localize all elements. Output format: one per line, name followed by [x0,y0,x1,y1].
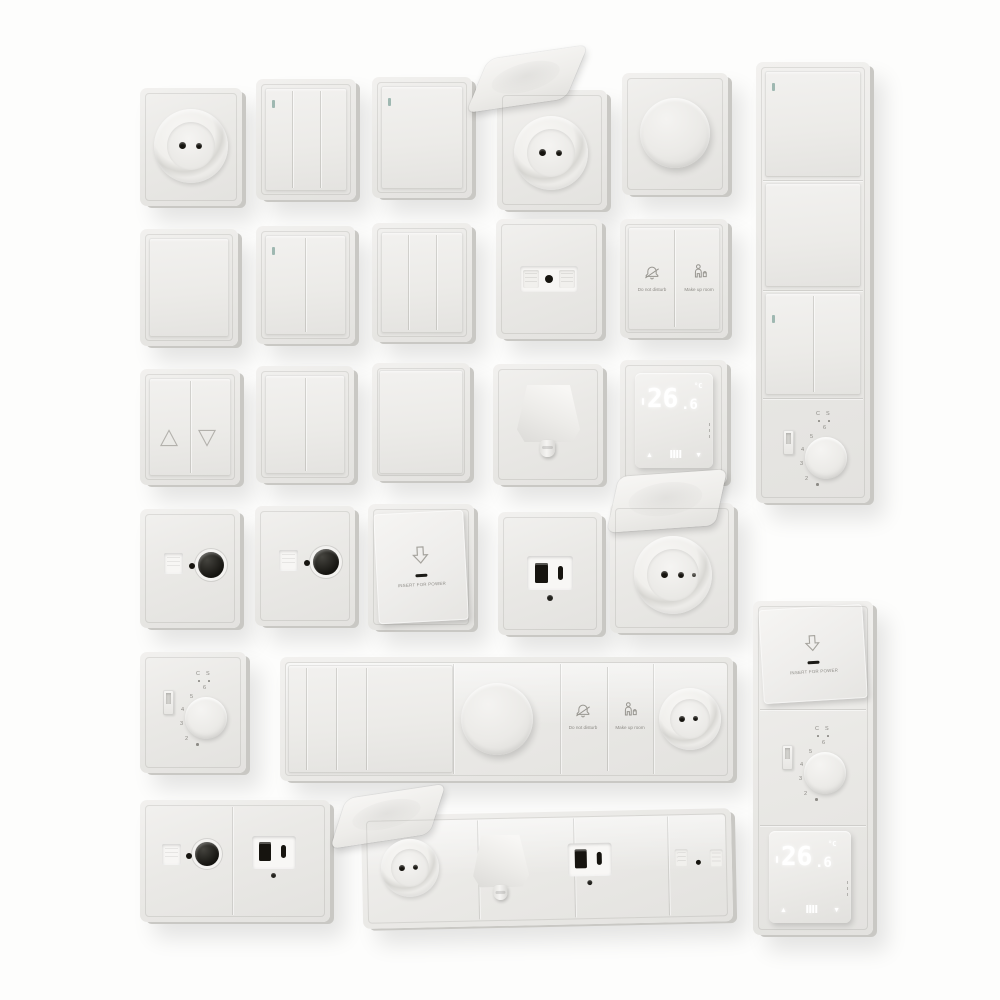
rocker-divider [366,668,367,770]
coax-connector[interactable] [198,552,224,578]
data-socket-plate [496,219,602,339]
temp-up-button[interactable]: ▲ [646,452,653,459]
rocker-divider [336,668,337,770]
data-port[interactable] [710,849,723,866]
section-divider [763,398,863,399]
single-rocker-switch-plate [372,363,470,481]
scale-number: 3 [180,721,183,727]
horizontal-socket-panel [361,808,733,929]
socket-pin-hole [413,865,418,870]
tv-pin-hole [186,853,192,859]
rocker-triple[interactable] [265,88,347,191]
socket-pin-hole [661,571,668,578]
standby-mark: S [206,671,210,677]
section-divider [653,664,654,774]
makeup-label: Make up room [682,287,716,293]
temperature-unit: °C [694,382,702,390]
section-divider [763,180,863,181]
scale-number: 4 [181,707,184,713]
rocker-double[interactable] [265,375,345,474]
digital-thermostat: 26 .6 °C ▲ ▼ [635,373,713,468]
usb-c-port[interactable] [558,566,563,580]
scale-number: 5 [809,749,812,755]
temperature-value: 26 [781,844,812,870]
blind-down-icon [194,425,220,451]
rocker-divider [408,235,409,330]
socket-contact [692,573,696,577]
scale-dot [198,680,200,682]
digital-thermostat: 26 .6 °C ▲ ▼ [769,831,851,923]
insert-label: INSERT FOR POWER [762,666,866,677]
center-hole [696,860,701,865]
temperature-decimal: .6 [815,856,832,870]
heating-indicator-icon [776,856,778,863]
standby-mark: S [826,411,830,417]
dimmer-knob[interactable] [640,98,710,168]
keycard-holder-plate: INSERT FOR POWER [368,504,474,630]
rocker-triple[interactable] [381,232,463,333]
dnd-label: Do not disturb [635,287,669,293]
bell-slash-icon [642,263,662,283]
eu-socket[interactable] [634,536,712,614]
card-slot[interactable] [807,661,819,665]
socket-pin-hole [693,716,698,721]
scale-number: 6 [203,685,206,691]
cable-outlet-hood [517,385,580,442]
rocker-double[interactable] [765,293,861,395]
dnd-label: Do not disturb [566,725,600,731]
section-divider [760,709,866,710]
center-hole [545,275,553,283]
blind-switch-plate [140,369,240,485]
setpoint-dot [196,743,199,746]
status-indicator [772,83,775,91]
temp-down-button[interactable]: ▼ [695,452,702,459]
scale-number: 5 [810,434,813,440]
analog-thermostat: C S 6 5 4 3 2 [759,715,865,823]
dimmer-knob[interactable] [461,683,533,755]
keycard-front[interactable]: INSERT FOR POWER [373,510,469,625]
mode-slider[interactable] [782,745,793,770]
scale-number: 3 [799,776,802,782]
horizontal-multigang-panel: Do not disturb Make up room [280,657,733,781]
section-divider [453,664,454,774]
makeup-label: Make up room [613,725,647,731]
usb-a-port[interactable] [535,563,548,583]
rocker-double[interactable] [265,235,346,335]
standby-mark: S [825,726,829,732]
data-port[interactable] [675,849,688,866]
menu-grid-icon[interactable] [673,450,675,458]
analog-thermostat: C S 6 5 4 3 2 [140,660,246,768]
rocker-divider [190,381,191,473]
data-socket[interactable] [520,266,578,292]
socket-pin-hole [196,143,202,149]
single-rocker-switch-plate [372,77,472,198]
rocker-divider [306,668,307,770]
thermostat-dial[interactable] [804,752,846,794]
scale-number: 6 [823,425,826,431]
temperature-value: 26 [647,386,678,412]
menu-grid-icon[interactable] [809,905,811,913]
rocker-divider [607,667,608,771]
usb-a-port[interactable] [575,849,587,868]
tv-pin-hole [304,560,310,566]
side-buttons[interactable] [847,881,849,884]
dimmer-plate [622,73,728,195]
scale-dot [818,420,820,422]
mounting-hole [271,873,276,878]
socket-lid[interactable] [607,469,727,532]
socket-lid[interactable] [330,784,445,849]
coax-connector[interactable] [195,842,219,866]
status-indicator [272,247,275,255]
scale-dot [817,735,819,737]
scale-number: 4 [801,447,804,453]
scale-number: 5 [190,694,193,700]
single-rocker-switch-plate [140,229,238,346]
setpoint-dot [816,483,819,486]
eu-socket[interactable] [380,838,439,897]
rocker-single[interactable] [149,238,229,337]
tv-slot[interactable] [279,550,298,571]
rocker-divider [292,91,293,188]
mounting-hole [547,595,553,601]
bell-slash-icon [573,701,593,721]
socket-pin-hole [678,572,684,578]
tall-hotel-panel: INSERT FOR POWER C S 6 5 4 3 2 26 .6 °C … [753,601,873,935]
status-indicator [388,98,391,106]
keycard-front[interactable]: INSERT FOR POWER [758,604,868,704]
usb-socket-plate [498,512,602,635]
heating-indicator-icon [642,398,644,405]
scale-number: 4 [800,762,803,768]
triple-rocker-switch-plate [372,223,472,342]
insert-card-arrow-icon [408,543,433,568]
double-rocker-switch-plate [256,366,354,483]
socket-pin-hole [556,150,562,156]
rocker-single[interactable] [765,183,861,287]
mode-slider[interactable] [163,690,174,715]
scale-number: 6 [822,740,825,746]
usb-recess [567,843,612,877]
socket-pin-hole [399,865,405,871]
scale-dot [827,735,829,737]
comfort-mark: C [815,726,819,732]
cable-gland [540,440,555,457]
dnd-switch-plate: Do not disturb Make up room [620,219,728,338]
section-divider [560,664,561,774]
socket-pin-hole [679,716,685,722]
housekeeping-icon [620,700,640,720]
switch-collection-render: C S 6 5 4 3 2 [0,0,1000,1000]
scale-dot [828,420,830,422]
eu-socket[interactable] [514,116,588,190]
rocker-single[interactable] [381,86,463,189]
tv-socket-plate [255,506,355,626]
thermostat-dial[interactable] [185,697,227,739]
tv-slot[interactable] [164,553,183,574]
mounting-hole [587,880,592,885]
eu-socket[interactable] [659,688,721,750]
tv-socket-plate [140,509,240,628]
usb-a-port[interactable] [259,842,271,861]
cable-gland [493,885,507,900]
scale-number: 2 [805,476,808,482]
blind-up-icon [156,425,182,451]
temp-up-button[interactable]: ▲ [780,907,787,914]
usb-recess [252,836,296,869]
tall-multigang-panel: C S 6 5 4 3 2 [756,62,870,503]
cable-outlet-plate [493,364,603,485]
rocker-divider [305,238,306,332]
rocker-divider [813,296,814,392]
rocker-divider [320,91,321,188]
temperature-unit: °C [828,840,836,848]
double-rocker-switch-plate [256,226,355,344]
digital-thermostat-plate: 26 .6 °C ▲ ▼ [620,360,727,484]
rocker-divider [305,378,306,471]
tv-pin-hole [189,563,195,569]
tv-usb-combo-plate [140,800,330,922]
status-indicator [772,315,775,323]
socket-pin-hole [179,142,186,149]
eu-socket-plate [140,88,242,206]
section-divider [232,807,233,915]
eu-socket[interactable] [154,109,228,183]
lidded-socket-plate [497,90,607,210]
section-divider [667,816,670,915]
analog-thermostat-plate: C S 6 5 4 3 2 [140,652,246,773]
scale-number: 2 [804,791,807,797]
scale-number: 3 [800,461,803,467]
status-indicator [272,100,275,108]
data-port[interactable] [559,270,575,288]
temp-down-button[interactable]: ▼ [833,907,840,914]
setpoint-dot [815,798,818,801]
card-slot[interactable] [415,574,427,578]
coax-connector[interactable] [313,549,339,575]
usb-recess [527,556,573,590]
usb-c-port[interactable] [281,845,286,858]
rocker-single[interactable] [379,370,463,474]
tv-slot[interactable] [162,844,181,865]
side-buttons[interactable] [709,423,711,426]
usb-c-port[interactable] [597,852,602,865]
thermostat-dial[interactable] [805,437,847,479]
socket-pin-hole [539,149,546,156]
scale-dot [208,680,210,682]
lidded-socket-plate [610,503,734,633]
keypad-rockers[interactable] [288,665,453,773]
temperature-decimal: .6 [681,398,698,412]
insert-label: INSERT FOR POWER [377,580,467,590]
analog-thermostat: C S 6 5 4 3 2 [760,400,866,508]
scale-number: 2 [185,736,188,742]
triple-rocker-switch-plate [256,79,356,200]
section-divider [760,825,866,826]
rocker-divider [674,230,675,327]
rocker-divider [436,235,437,330]
data-port[interactable] [523,270,539,288]
comfort-mark: C [816,411,820,417]
mode-slider[interactable] [783,430,794,455]
socket-lid[interactable] [466,45,588,113]
rocker-single[interactable] [765,71,861,177]
housekeeping-icon [690,262,710,282]
comfort-mark: C [196,671,200,677]
cable-outlet-hood [472,834,529,887]
insert-card-arrow-icon [801,632,824,655]
section-divider [763,290,863,291]
